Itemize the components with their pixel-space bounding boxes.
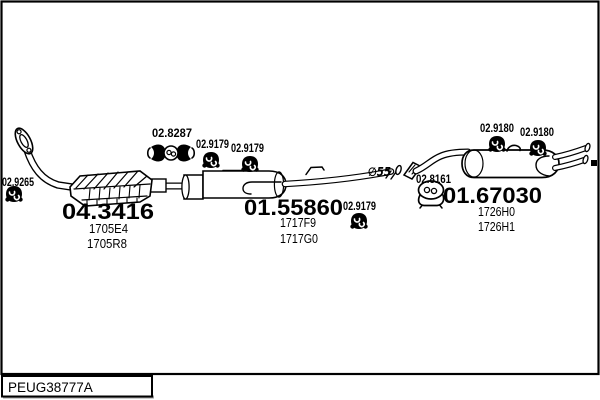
part-number-mid-clamp-1: 02.9179	[196, 137, 229, 151]
hanger-icon-front	[148, 145, 195, 162]
edge-mark	[591, 160, 597, 166]
variant-mid-muffler-2: 1717G0	[280, 232, 318, 246]
clamp-icon-mid-1	[202, 152, 219, 168]
variant-rear-muffler-2: 1726H1	[478, 220, 515, 234]
part-number-rear-clamp-1: 02.9180	[480, 121, 514, 135]
variant-mid-muffler-1: 1717F9	[280, 216, 316, 230]
clamp-icon-rear-1	[488, 136, 505, 152]
clamp-icon-rear-2	[529, 140, 546, 156]
part-number-mid-clamp-3: 02.9179	[343, 199, 376, 213]
clamp-icon-mid-2	[241, 156, 258, 172]
part-number-rear-clamp-2: 02.9180	[520, 125, 554, 139]
variant-catalyst-1: 1705E4	[89, 222, 128, 236]
part-number-catalyst: 04.3416	[62, 199, 154, 224]
pipe-diameter-note: ∅55	[368, 165, 391, 179]
part-number-front-clamp: 02.9265	[2, 175, 34, 189]
variant-catalyst-2: 1705R8	[87, 237, 127, 251]
part-number-mid-clamp-2: 02.9179	[231, 141, 264, 155]
variant-rear-muffler-1: 1726H0	[478, 205, 515, 219]
part-number-front-hanger: 02.8287	[152, 126, 192, 140]
clamp-icon-mid-3	[350, 213, 367, 229]
reference-code-box: PEUG38777A	[2, 376, 154, 399]
exhaust-parts-diagram: 02.8287 02.9179 02.9179 02.9265 02.9179 …	[0, 0, 600, 400]
reference-code: PEUG38777A	[8, 380, 93, 395]
